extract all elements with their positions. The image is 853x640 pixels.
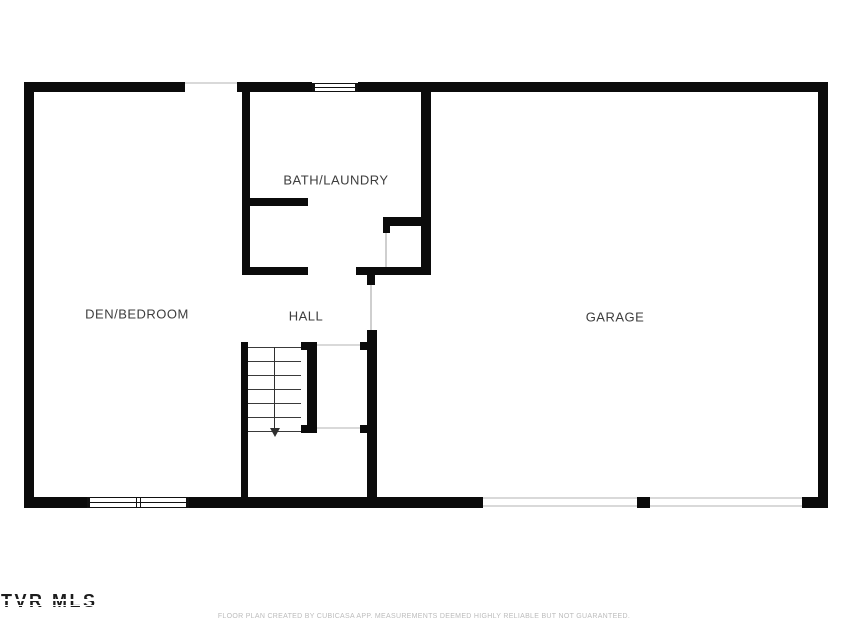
stencil-cut [0, 605, 100, 606]
exterior-wall-top-left [24, 82, 185, 92]
garage-door-opening-1-bottom [483, 505, 637, 507]
bath-bottom-wall-left [242, 267, 308, 275]
mls-watermark-logo: TVR MLS [1, 590, 98, 612]
window-divider [140, 498, 141, 507]
garage-door-opening-2-top [650, 497, 802, 499]
stairwell-mid-wall [307, 342, 317, 433]
stairs-down-arrow-icon [270, 428, 280, 437]
stairwell-mid-wall-cap-bottom [301, 425, 307, 433]
stencil-cut [0, 599, 100, 601]
exterior-wall-left [24, 82, 34, 508]
entry-opening-top [185, 82, 237, 84]
stairwell-left-wall [241, 342, 248, 497]
exterior-wall-bottom-right [802, 497, 828, 508]
understair-jamb-top-right [360, 342, 367, 350]
bath-divider-wall [250, 198, 308, 206]
garage-door-opening-2-bottom [650, 505, 802, 507]
hall-garage-door-jamb-top [367, 275, 375, 285]
room-label-garage: GARAGE [586, 310, 645, 325]
window-frame-bar [313, 84, 315, 91]
exterior-wall-top-mid [237, 82, 312, 92]
bath-bottom-wall-right [356, 267, 430, 275]
garage-door-opening-1-top [483, 497, 637, 499]
hall-garage-door-opening [370, 285, 372, 330]
window-frame-bar [355, 84, 357, 91]
hall-garage-wall [367, 330, 377, 497]
bath-right-wall [421, 92, 431, 275]
window-divider [136, 498, 137, 507]
closet-door-jamb-top [383, 226, 390, 233]
window-glass-line [88, 502, 188, 503]
room-label-bath-laundry: BATH/LAUNDRY [283, 173, 388, 188]
floor-plan-disclaimer: FLOOR PLAN CREATED BY CUBICASA APP. MEAS… [218, 613, 630, 620]
garage-door-center-post [637, 497, 650, 508]
exterior-wall-bottom-left [24, 497, 87, 508]
exterior-wall-right [818, 82, 828, 508]
room-label-den-bedroom: DEN/BEDROOM [85, 307, 189, 322]
window-frame-bar [88, 498, 90, 507]
closet-top-wall [383, 217, 421, 226]
window-bottom-double [87, 497, 189, 508]
understair-jamb-bottom-right [360, 425, 367, 433]
understair-opening-top [317, 344, 360, 346]
floor-plan-image: BATH/LAUNDRY DEN/BEDROOM HALL GARAGE TVR… [0, 0, 853, 640]
stairwell-mid-wall-cap-top [301, 342, 307, 350]
closet-door-opening [385, 233, 387, 267]
window-top [312, 83, 358, 92]
understair-opening-bottom [317, 427, 360, 429]
exterior-wall-top-right [358, 82, 828, 92]
window-frame-bar [186, 498, 188, 507]
mls-watermark-text: TVR MLS [1, 591, 98, 611]
window-glass-line [313, 87, 357, 88]
bath-left-wall [242, 92, 250, 275]
exterior-wall-bottom-mid [189, 497, 483, 508]
room-label-hall: HALL [289, 309, 324, 324]
stairs-down-arrow-shaft [274, 347, 275, 428]
